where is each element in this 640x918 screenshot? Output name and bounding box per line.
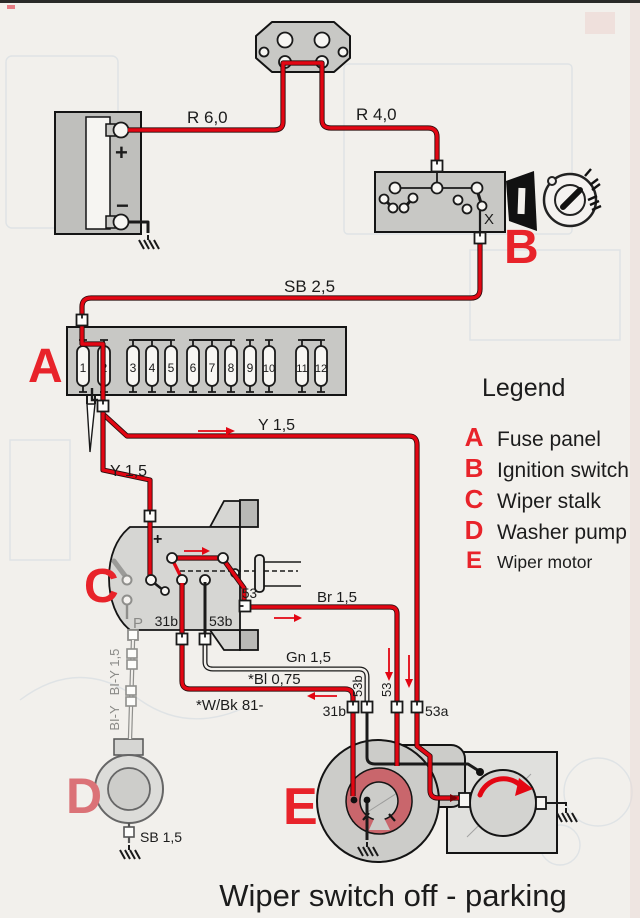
- fuse-number: 9: [247, 361, 254, 375]
- fuse-number: 12: [315, 363, 327, 375]
- fuse-number: 10: [263, 363, 275, 375]
- wiring-diagram: 1 2 3 4 5 6 7 8 9 10 11 12: [0, 0, 640, 918]
- marker-ignition-switch: B: [504, 221, 539, 274]
- fuse: 7: [206, 340, 218, 392]
- stalk-p-label: P: [133, 615, 143, 632]
- motor-53a-label: 53a: [425, 703, 449, 719]
- fuse-number: 4: [149, 361, 156, 375]
- fuse-number: 6: [190, 361, 197, 375]
- fuse: 6: [187, 340, 199, 392]
- marker-washer-pump: D: [66, 768, 102, 824]
- fuse: 4: [146, 340, 158, 392]
- wire-label-bly15: BI-Y 1,5: [107, 649, 122, 696]
- wire-label-y15-short: Y 1,5: [110, 463, 147, 480]
- wire-label-br15: Br 1,5: [317, 589, 357, 606]
- wire-label-gn15: Gn 1,5: [286, 649, 331, 666]
- stalk-31b-label: 31b: [155, 613, 179, 629]
- fuse-number: 5: [168, 361, 175, 375]
- fuse-number: 3: [130, 361, 137, 375]
- legend-label: Fuse panel: [497, 428, 601, 451]
- fuse: 5: [165, 340, 177, 392]
- stalk-53-label: 53: [242, 586, 257, 601]
- fuse: 12: [315, 340, 327, 392]
- motor-31b-label: 31b: [323, 703, 347, 719]
- legend-key: B: [465, 453, 484, 483]
- legend-key: C: [465, 484, 484, 514]
- legend-key: A: [465, 422, 484, 452]
- wire-label-r60: R 6,0: [187, 108, 228, 127]
- legend-label: Washer pump: [497, 521, 627, 544]
- fuse-number: 8: [228, 361, 235, 375]
- wiring-diagram-page: 1 2 3 4 5 6 7 8 9 10 11 12: [0, 0, 640, 918]
- wire-label-bl075: *Bl 0,75: [248, 671, 301, 688]
- terminal-label-x: X: [484, 211, 494, 228]
- legend-label: Wiper motor: [497, 552, 592, 572]
- fuse: 3: [127, 340, 139, 392]
- battery-plus-label: +: [115, 140, 128, 165]
- legend-label: Wiper stalk: [497, 490, 601, 513]
- wire-label-sb25: SB 2,5: [284, 277, 335, 296]
- fuse: 9: [244, 340, 256, 392]
- motor-53b-label: 53b: [350, 675, 365, 697]
- fuse: 1: [77, 340, 89, 392]
- page-title: Wiper switch off - parking: [219, 878, 566, 913]
- wire-label-sb15: SB 1,5: [140, 829, 182, 845]
- wire-label-wbk81: *W/Bk 81-: [196, 697, 264, 714]
- wire-label-bly: BI-Y: [107, 705, 122, 731]
- fuse: 8: [225, 340, 237, 392]
- battery-plus-terminal: [114, 123, 129, 138]
- marker-wiper-stalk: C: [84, 560, 119, 613]
- fuse-number: 11: [296, 363, 307, 375]
- motor-53-label: 53: [379, 683, 394, 697]
- fuse: 10: [263, 340, 275, 392]
- battery-minus-label: −: [116, 193, 129, 218]
- fuse: 11: [296, 340, 308, 392]
- wire-label-y15-long: Y 1,5: [258, 417, 295, 434]
- legend-title: Legend: [482, 374, 565, 402]
- stalk-plus-label: +: [153, 531, 162, 548]
- fuse-number: 7: [209, 361, 216, 375]
- fuse-number: 1: [80, 361, 87, 375]
- wire-label-r40: R 4,0: [356, 105, 397, 124]
- marker-wiper-motor: E: [283, 778, 318, 836]
- legend-key: E: [466, 547, 482, 574]
- legend-label: Ignition switch: [497, 459, 629, 482]
- stalk-53b-label: 53b: [209, 613, 233, 629]
- marker-fuse-panel: A: [28, 340, 63, 393]
- legend-key: D: [465, 515, 484, 545]
